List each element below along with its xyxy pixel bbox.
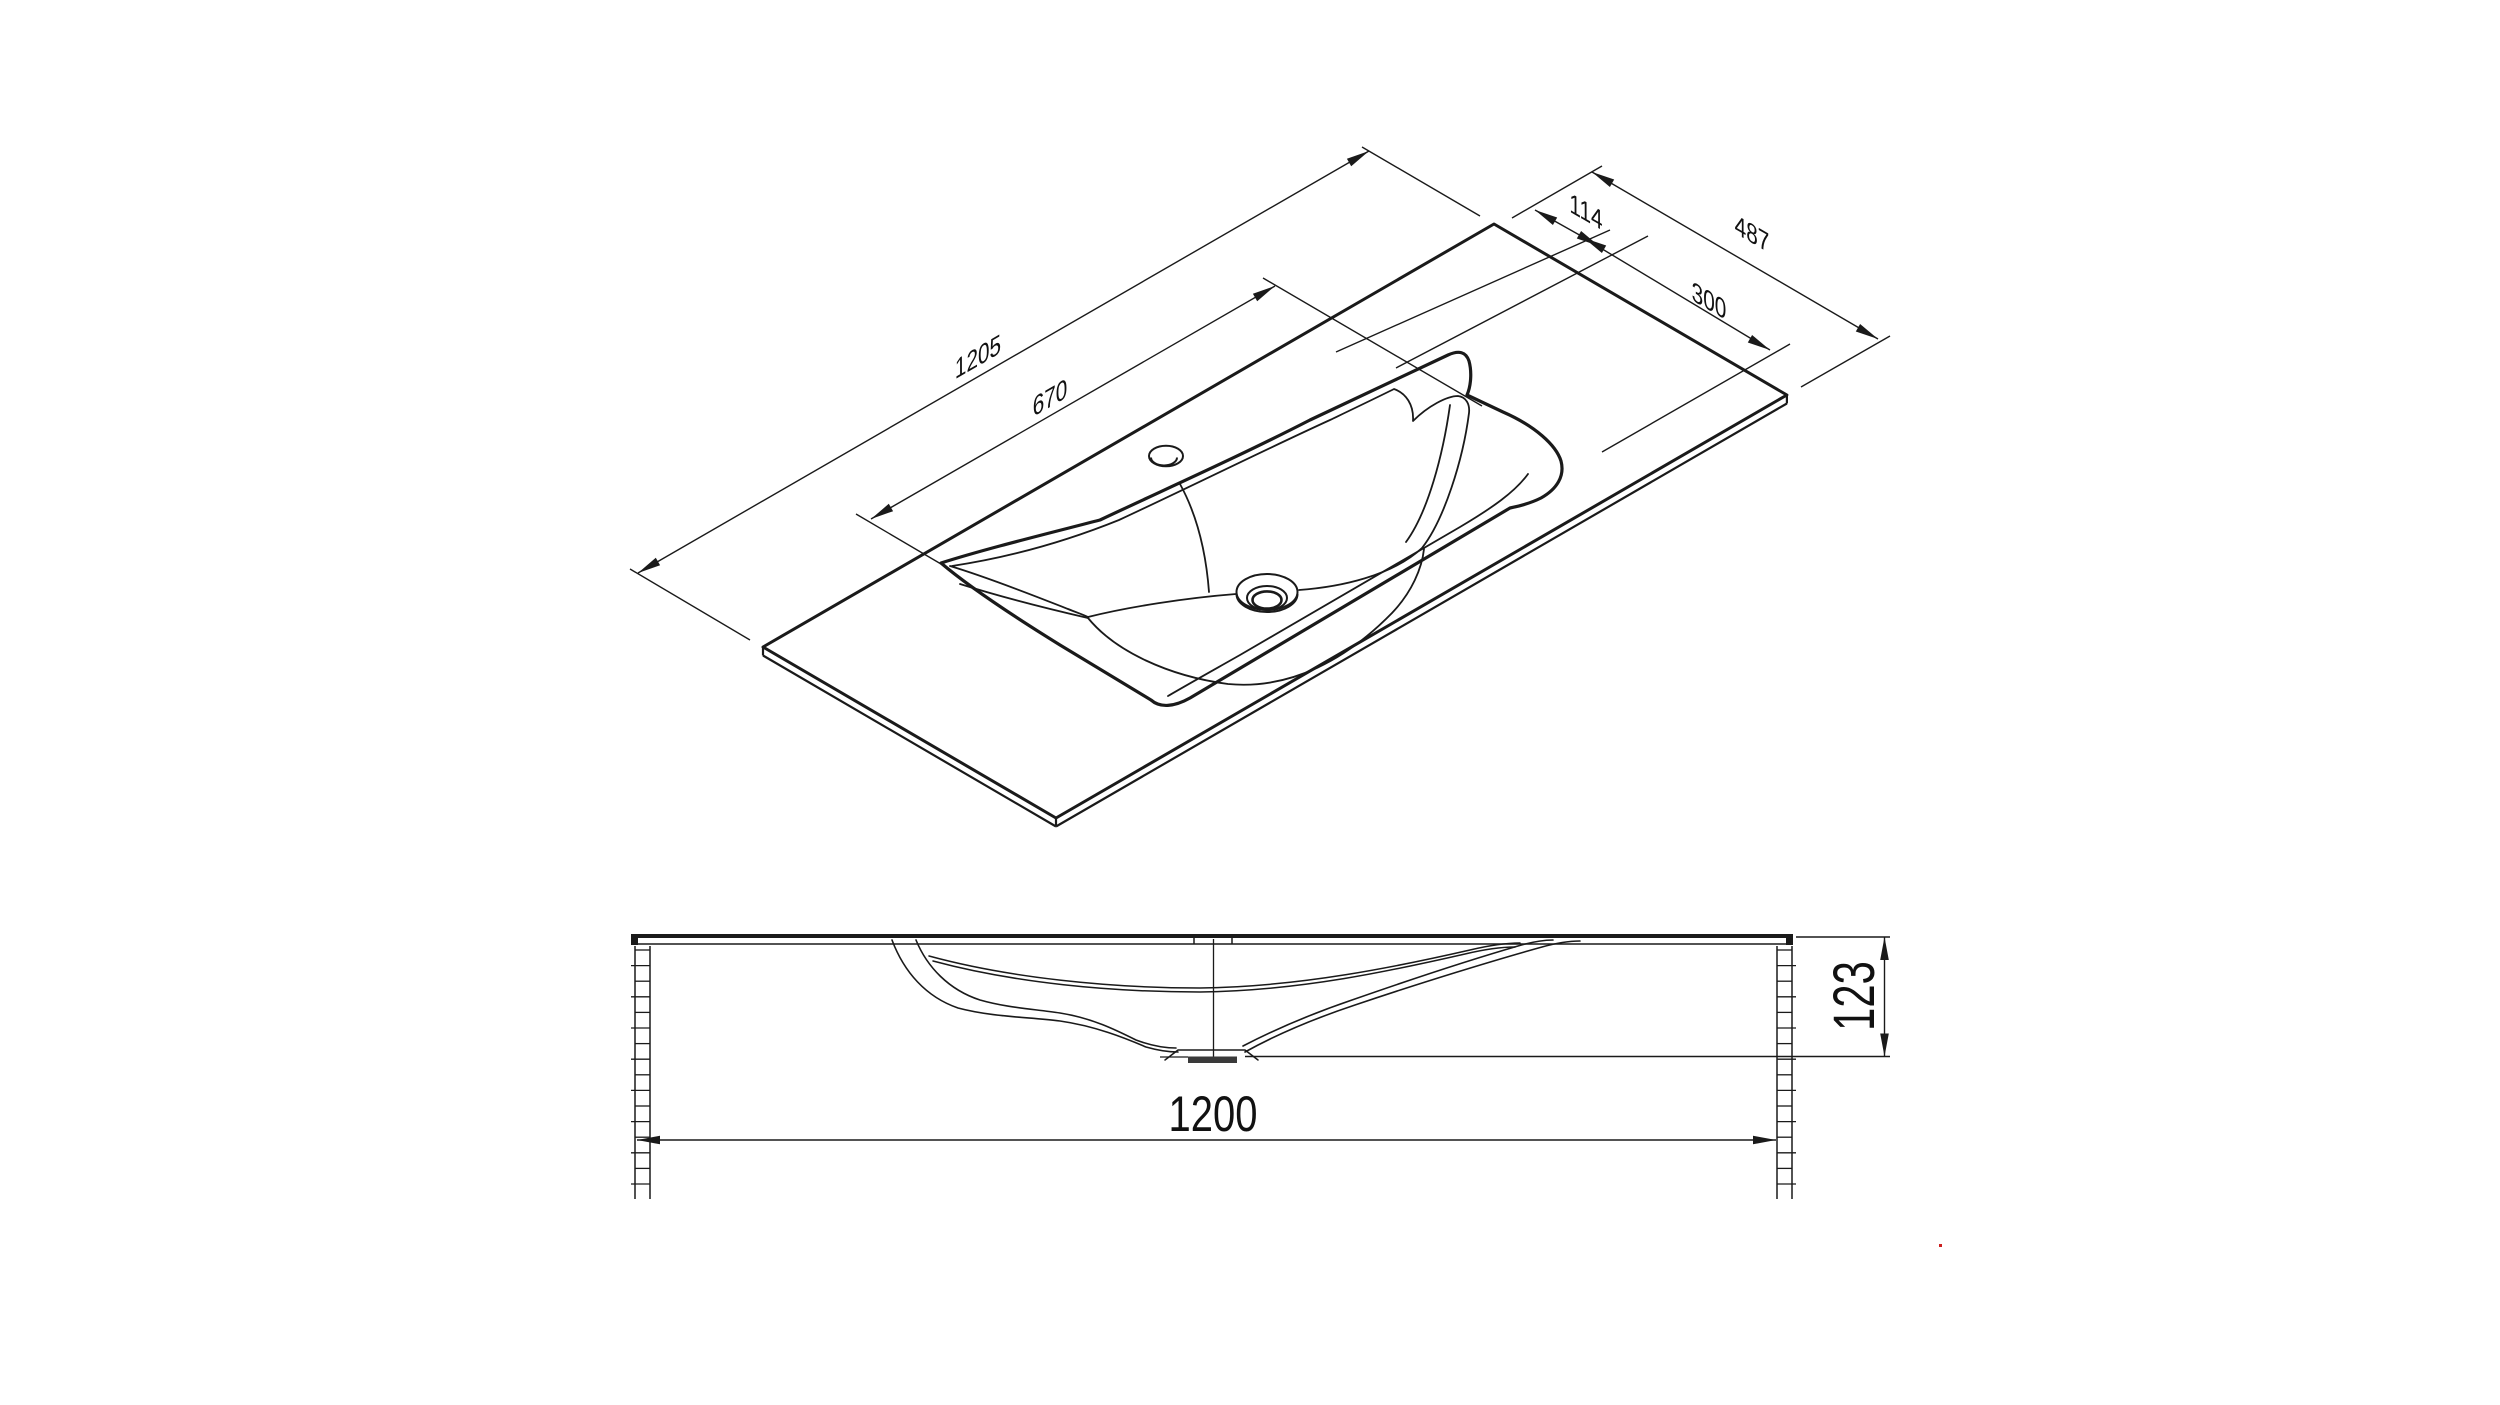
svg-text:1200: 1200 [1169, 1086, 1258, 1142]
svg-text:123: 123 [1821, 961, 1886, 1031]
